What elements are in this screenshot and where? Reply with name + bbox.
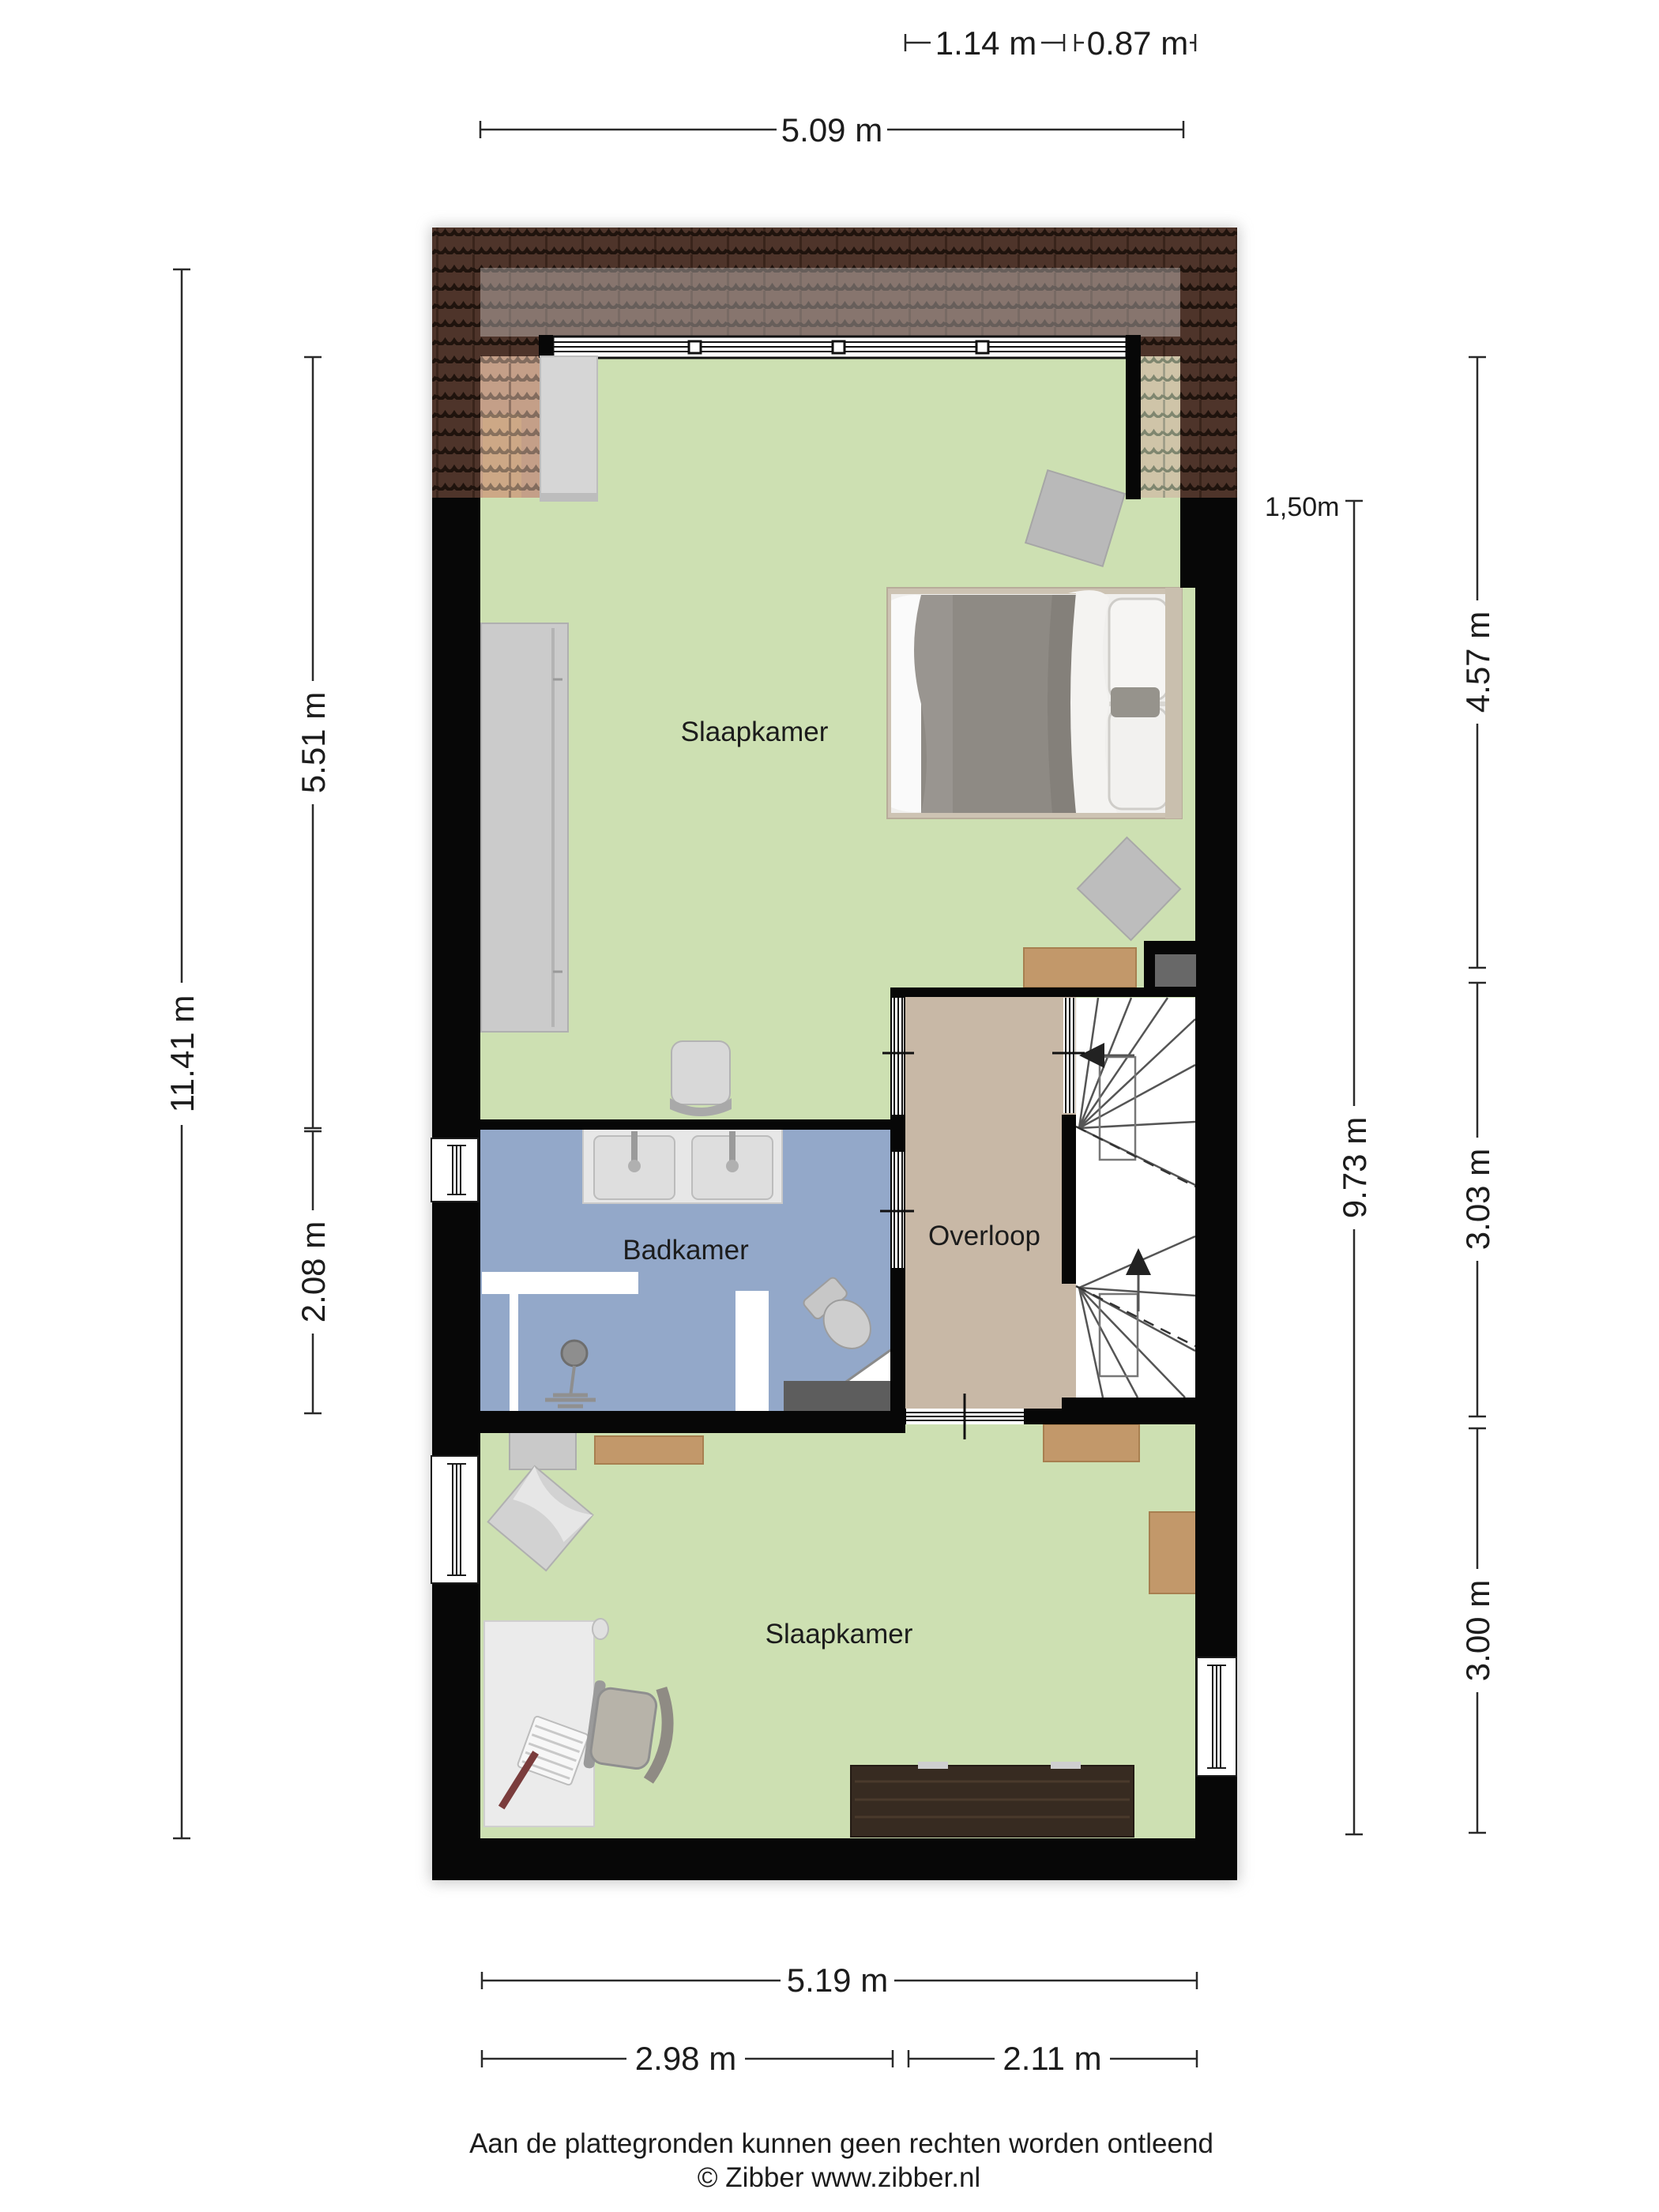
svg-text:11.41 m: 11.41 m [164, 995, 201, 1113]
svg-text:2.08 m: 2.08 m [295, 1221, 332, 1322]
svg-text:5.51 m: 5.51 m [295, 692, 332, 793]
svg-text:4.57 m: 4.57 m [1459, 611, 1496, 713]
svg-text:2.98 m: 2.98 m [635, 2040, 736, 2077]
svg-text:3.00 m: 3.00 m [1459, 1580, 1496, 1681]
svg-text:Aan de plattegronden kunnen ge: Aan de plattegronden kunnen geen rechten… [469, 2128, 1213, 2159]
svg-text:3.03 m: 3.03 m [1459, 1149, 1496, 1250]
svg-text:Badkamer: Badkamer [623, 1235, 749, 1266]
svg-text:1.14 m: 1.14 m [935, 24, 1036, 62]
svg-text:1,50m: 1,50m [1265, 492, 1340, 522]
svg-text:5.09 m: 5.09 m [781, 111, 882, 149]
svg-text:Slaapkamer: Slaapkamer [681, 717, 829, 747]
svg-text:5.19 m: 5.19 m [787, 1962, 888, 1999]
svg-text:Slaapkamer: Slaapkamer [766, 1619, 913, 1650]
svg-text:Overloop: Overloop [928, 1221, 1040, 1251]
svg-text:2.11 m: 2.11 m [1003, 2040, 1101, 2077]
svg-text:9.73 m: 9.73 m [1336, 1117, 1373, 1218]
svg-text:0.87 m: 0.87 m [1087, 24, 1188, 62]
svg-text:© Zibber www.zibber.nl: © Zibber www.zibber.nl [698, 2162, 980, 2193]
